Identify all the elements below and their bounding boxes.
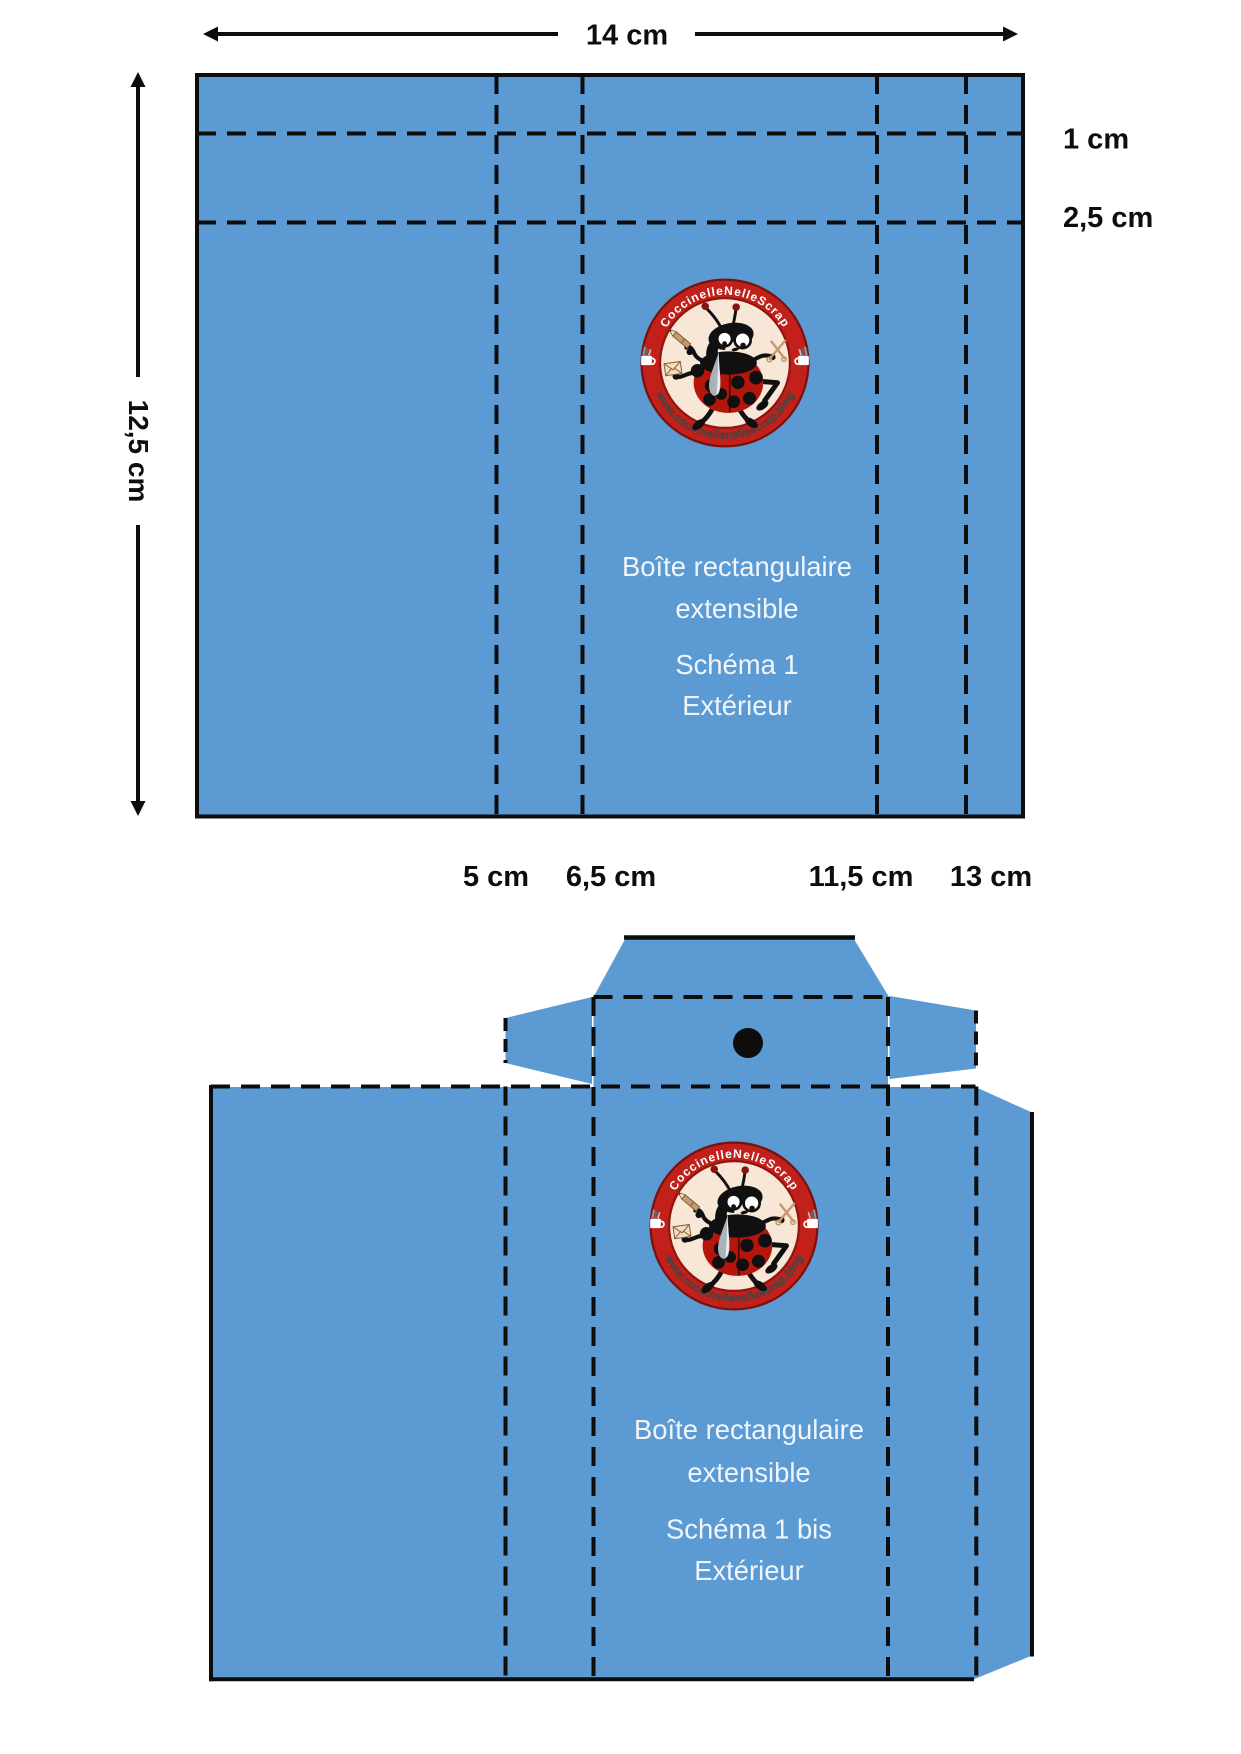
svg-text:5 cm: 5 cm — [463, 861, 529, 893]
svg-text:13 cm: 13 cm — [950, 861, 1032, 893]
svg-text:1 cm: 1 cm — [1063, 124, 1129, 156]
svg-text:11,5 cm: 11,5 cm — [809, 861, 914, 893]
svg-text:extensible: extensible — [687, 1457, 810, 1488]
svg-text:Schéma 1 bis: Schéma 1 bis — [666, 1514, 832, 1545]
svg-text:6,5 cm: 6,5 cm — [566, 861, 656, 893]
svg-text:12,5 cm: 12,5 cm — [123, 400, 154, 503]
svg-text:14 cm: 14 cm — [586, 20, 668, 52]
svg-text:Boîte rectangulaire: Boîte rectangulaire — [622, 551, 852, 582]
svg-text:Boîte rectangulaire: Boîte rectangulaire — [634, 1414, 864, 1445]
svg-text:extensible: extensible — [675, 593, 798, 624]
svg-text:Extérieur: Extérieur — [694, 1555, 804, 1586]
svg-text:Extérieur: Extérieur — [682, 690, 792, 721]
svg-text:Schéma 1: Schéma 1 — [675, 649, 798, 680]
svg-text:2,5 cm: 2,5 cm — [1063, 202, 1153, 234]
